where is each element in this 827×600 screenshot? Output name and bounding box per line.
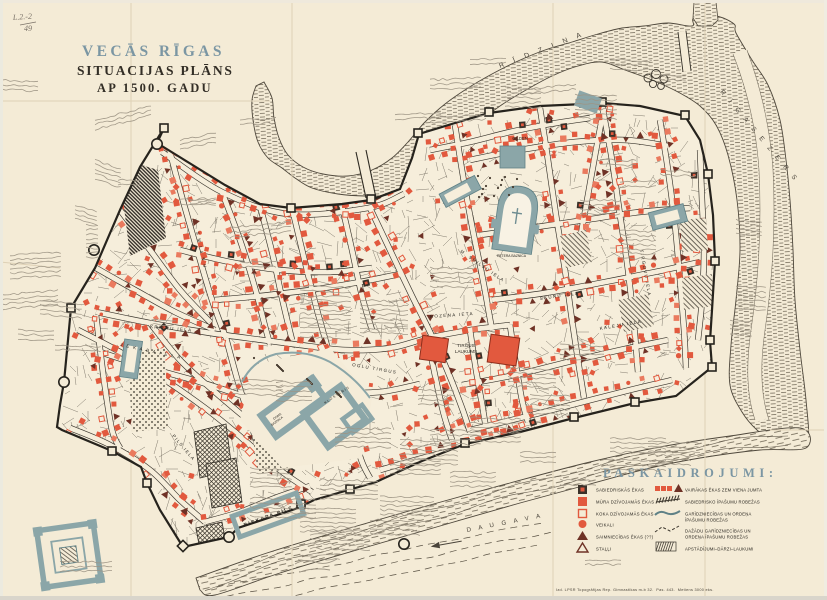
svg-text:AP 1500. GADU: AP 1500. GADU [97,81,213,95]
svg-text:KOKA DZĪVOJAMĀS ĒKAS: KOKA DZĪVOJAMĀS ĒKAS [596,512,654,517]
svg-text:DAŽĀDU GARĪDZNIECĪBAS UN: DAŽĀDU GARĪDZNIECĪBAS UN [685,529,751,534]
svg-text:PETERA BAZNICA: PETERA BAZNICA [497,254,527,258]
svg-text:STAĻĻI: STAĻĻI [596,547,611,552]
svg-text:SITUACIJAS PLĀNS: SITUACIJAS PLĀNS [77,63,234,78]
svg-text:L.2.-2: L.2.-2 [12,12,33,22]
svg-text:Izd. LPSR Topogrāfijas Rep. Gi: Izd. LPSR Topogrāfijas Rep. Gimnastikas … [556,588,714,592]
svg-text:VECĀS RĪGAS: VECĀS RĪGAS [82,43,225,60]
svg-text:VEIKALI: VEIKALI [596,523,614,528]
svg-text:ĪPAŠUMU ROBEŽAS: ĪPAŠUMU ROBEŽAS [685,518,728,523]
svg-text:TIRGUS: TIRGUS [457,343,474,348]
svg-text:GARĪDZNIECĪBAS UN ORDEŅA: GARĪDZNIECĪBAS UN ORDEŅA [685,512,751,517]
svg-text:GILDEN: GILDEN [512,136,528,141]
svg-text:LAUKUMS: LAUKUMS [455,349,477,354]
svg-text:SABIEDRISKĀS ĒKAS: SABIEDRISKĀS ĒKAS [596,488,644,493]
svg-text:SAIMNIECĪBAS ĒKAS (??): SAIMNIECĪBAS ĒKAS (??) [596,535,654,540]
svg-text:APSTĀDĪJUMI–DĀRZI–LAUKUMI: APSTĀDĪJUMI–DĀRZI–LAUKUMI [685,547,754,552]
svg-text:ORDEŅA ĪPAŠUMU ROBEŽAS: ORDEŅA ĪPAŠUMU ROBEŽAS [685,535,748,540]
svg-text:SABIEDRISKO ĪPAŠUMU ROBEŽAS: SABIEDRISKO ĪPAŠUMU ROBEŽAS [685,500,760,505]
svg-text:MŪRA DZĪVOJAMĀS ĒKAS: MŪRA DZĪVOJAMĀS ĒKAS [596,500,654,505]
svg-text:PASKAIDROJUMI:: PASKAIDROJUMI: [603,466,778,480]
svg-text:49: 49 [24,24,32,33]
svg-text:VAIRĀKAS ĒKAS ZEM VIENA JUMTA: VAIRĀKAS ĒKAS ZEM VIENA JUMTA [685,488,762,493]
